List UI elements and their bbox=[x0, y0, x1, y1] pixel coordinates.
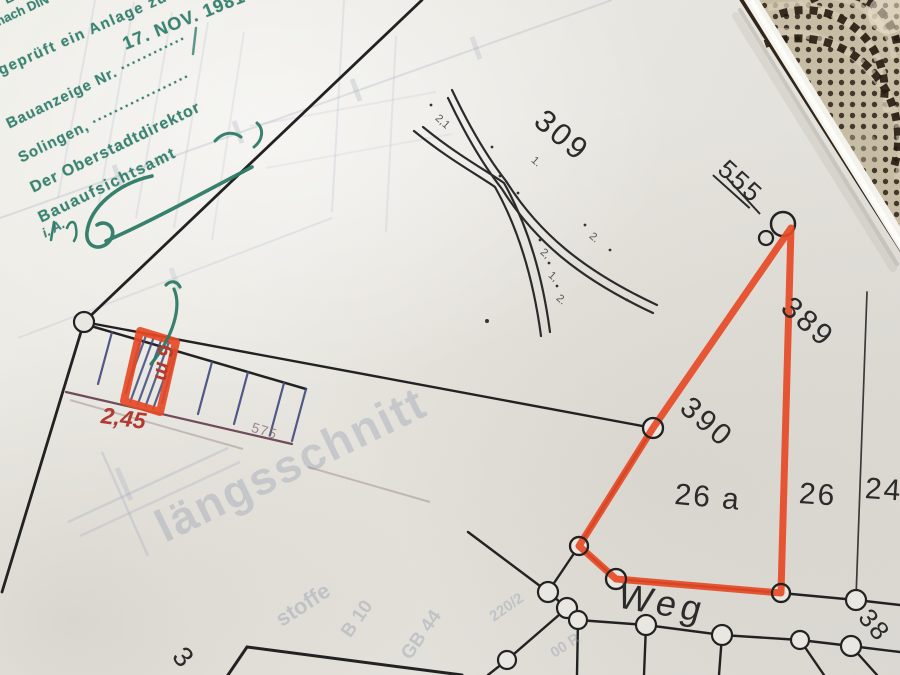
parcel-label-24: 24 bbox=[864, 474, 900, 507]
stall-depth-annotation: 6 m bbox=[151, 343, 176, 381]
stall-width-annotation: 2,45 bbox=[100, 404, 148, 433]
photographed-site-plan: Em nach DIN geprüft ein Anlage zu Bauanz… bbox=[0, 0, 900, 675]
survey-point-circles bbox=[74, 212, 866, 669]
parcel-label-26a: 26 a bbox=[673, 480, 742, 516]
weg-survey-lines bbox=[468, 428, 900, 675]
parcel-label-26: 26 bbox=[798, 479, 837, 512]
